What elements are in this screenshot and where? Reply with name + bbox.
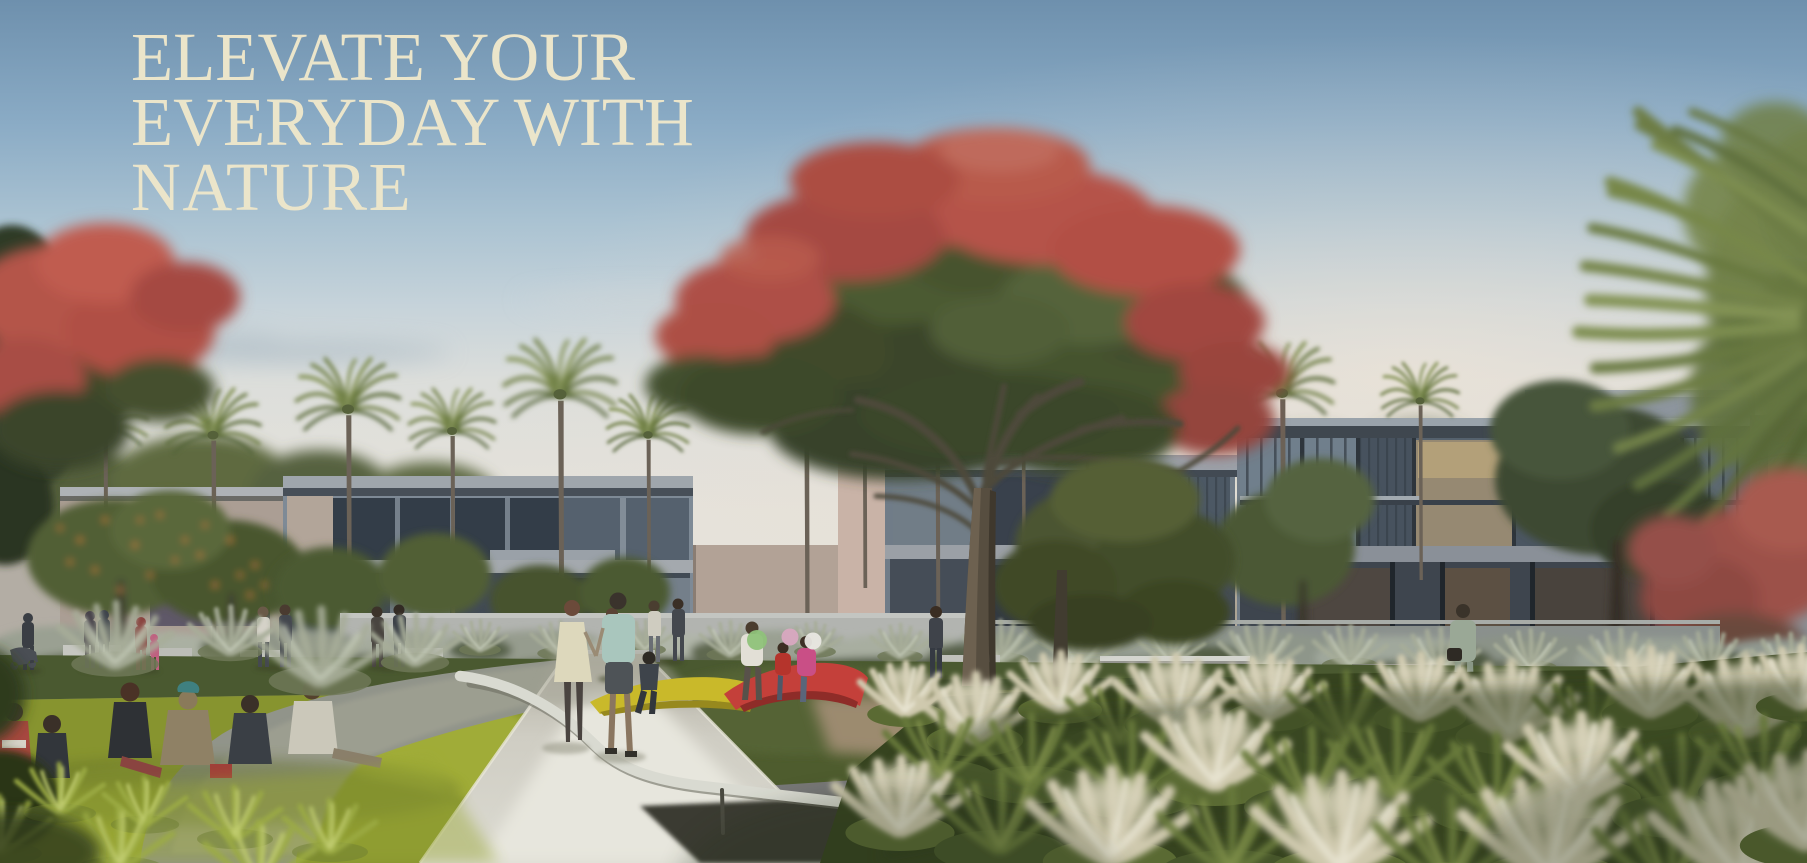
svg-text:NATURE: NATURE xyxy=(131,149,412,225)
